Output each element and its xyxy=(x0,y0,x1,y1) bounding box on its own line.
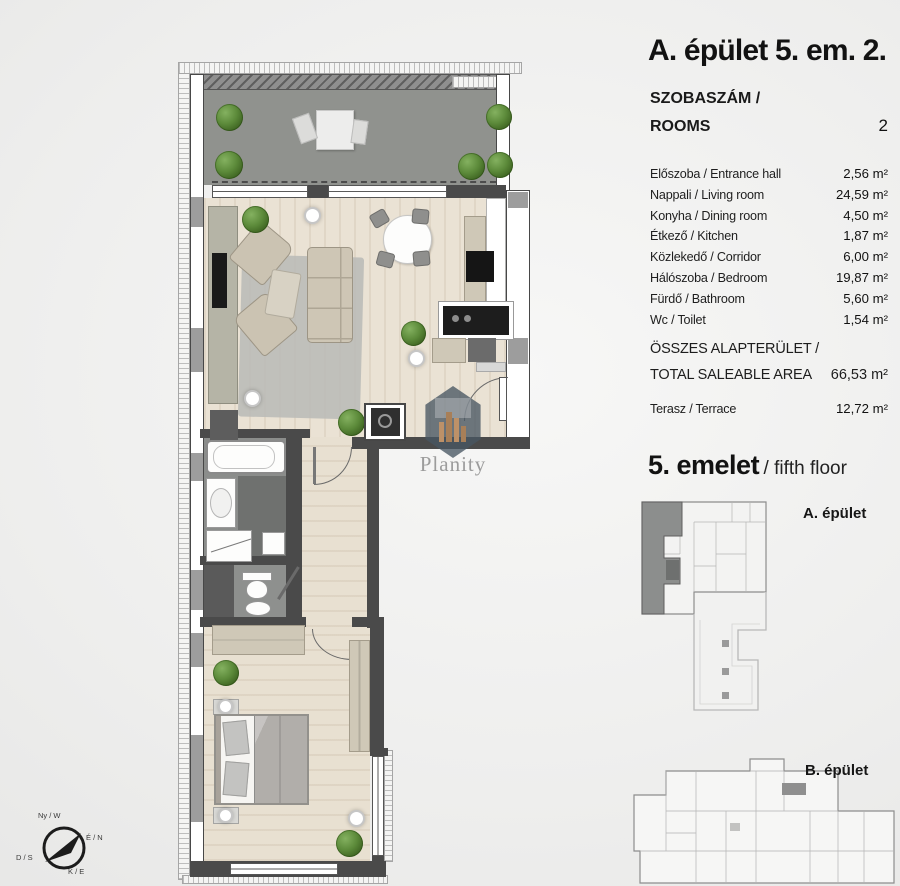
room-area-table: Előszoba / Entrance hall2,56 m² Nappali … xyxy=(650,166,888,332)
living-plant-1 xyxy=(242,206,269,233)
left-wall-segment-2 xyxy=(191,328,203,372)
living-plant-2 xyxy=(401,321,426,346)
table-row: Wc / Toilet1,54 m² xyxy=(650,312,888,333)
washbasin-bowl xyxy=(210,488,232,518)
dining-chair-2 xyxy=(411,208,429,224)
rooms-label-line1: SZOBASZÁM / xyxy=(650,90,760,108)
corridor-door-leaf xyxy=(313,447,316,484)
left-wall-segment-4 xyxy=(191,570,203,610)
living-terrace-window-1 xyxy=(212,185,308,198)
bed-duvet xyxy=(254,716,307,803)
left-wall-segment-5 xyxy=(191,633,203,667)
bedroom-door-opening xyxy=(306,617,352,627)
compass-label-south: D / S xyxy=(16,853,33,862)
sofa xyxy=(307,247,353,343)
table-row: Konyha / Dining room4,50 m² xyxy=(650,208,888,229)
bedroom-plant-2 xyxy=(336,830,363,857)
keyplan-b-label: B. épület xyxy=(805,762,868,779)
wardrobe xyxy=(212,625,305,655)
bedroom-right-wall-step xyxy=(370,748,388,756)
compass-needle xyxy=(45,833,81,862)
floor-heading-suffix: / fifth floor xyxy=(764,458,847,479)
insulation-hatch-top xyxy=(178,62,522,74)
room-label: Hálószoba / Bedroom xyxy=(650,271,767,285)
bedroom-plant-1 xyxy=(213,660,239,686)
living-terrace-pillar xyxy=(308,185,328,198)
table-row: Előszoba / Entrance hall2,56 m² xyxy=(650,166,888,187)
keyplan-a-label: A. épület xyxy=(803,505,866,522)
page-title: A. épület 5. em. 2. xyxy=(648,34,896,68)
sink-knob-2 xyxy=(464,315,471,322)
bath-corridor-column xyxy=(286,438,302,563)
entrance-door-gap xyxy=(508,376,528,420)
entrance-threshold xyxy=(476,362,506,372)
ceiling-light-3 xyxy=(244,390,261,407)
bathtub-inner xyxy=(213,445,275,469)
total-area-block: ÖSSZES ALAPTERÜLET / TOTAL SALEABLE AREA… xyxy=(650,336,888,388)
total-label-line1: ÖSSZES ALAPTERÜLET / xyxy=(650,336,888,362)
room-area: 4,50 m² xyxy=(843,208,888,223)
nightstand-bottom-lamp xyxy=(218,808,233,823)
keyplan-building-a xyxy=(636,496,778,718)
room-label: Nappali / Living room xyxy=(650,188,764,202)
compass-icon xyxy=(38,822,90,874)
planity-wordmark: Planity xyxy=(406,452,500,477)
bed-headboard xyxy=(216,716,221,803)
room-area: 24,59 m² xyxy=(836,187,888,202)
terrace-label: Terasz / Terrace xyxy=(650,402,736,416)
room-area: 5,60 m² xyxy=(843,291,888,306)
corridor-right-wall xyxy=(367,438,379,628)
bedroom-right-window xyxy=(372,756,384,856)
terrace-plant-3 xyxy=(486,104,512,130)
terrace-plant-5 xyxy=(487,152,513,178)
rooms-row: ROOMS 2 xyxy=(650,116,888,136)
terrace-row: Terasz / Terrace 12,72 m² xyxy=(650,401,888,422)
compass: Ny / W É / N D / S K / E xyxy=(10,805,120,883)
bath-appliance xyxy=(262,532,285,555)
room-area: 1,87 m² xyxy=(843,228,888,243)
insulation-hatch-right-bedroom xyxy=(384,750,393,862)
room-label: Konyha / Dining room xyxy=(650,209,767,223)
left-wall-bedroom-window xyxy=(191,735,203,822)
shoe-cabinet xyxy=(432,338,466,363)
left-wall-segment-3 xyxy=(191,453,203,481)
room-area: 2,56 m² xyxy=(843,166,888,181)
ceiling-light-2 xyxy=(408,350,425,367)
planity-buildings-icon xyxy=(439,408,467,442)
insulation-hatch-left xyxy=(178,64,190,880)
room-area: 6,00 m² xyxy=(843,249,888,264)
rooms-value: 2 xyxy=(879,116,888,136)
washing-machine-drum xyxy=(378,414,392,428)
bed-pillow-2 xyxy=(223,761,250,797)
table-row: Fürdő / Bathroom5,60 m² xyxy=(650,291,888,312)
entrance-doormat xyxy=(468,338,496,362)
floor-plan: Planity Ny / W É / N D / S K / E xyxy=(0,0,620,886)
floor-heading-main: 5. emelet xyxy=(648,450,759,480)
bidet xyxy=(245,601,271,616)
room-label: Fürdő / Bathroom xyxy=(650,292,745,306)
compass-label-west: Ny / W xyxy=(38,811,61,820)
table-row: Étkező / Kitchen1,87 m² xyxy=(650,228,888,249)
cooktop xyxy=(466,251,494,282)
entrance-door-leaf xyxy=(499,377,507,421)
terrace-plant-4 xyxy=(458,153,485,180)
table-row: Hálószoba / Bedroom19,87 m² xyxy=(650,270,888,291)
room-label: Közlekedő / Corridor xyxy=(650,250,761,264)
wc-shaft xyxy=(204,565,234,617)
living-terrace-window-2 xyxy=(328,185,447,198)
room-label: Előszoba / Entrance hall xyxy=(650,167,781,181)
nightstand-top-lamp xyxy=(218,699,233,714)
room-area: 1,54 m² xyxy=(843,312,888,327)
terrace-edge-dashed xyxy=(212,181,496,183)
left-wall-segment-1 xyxy=(191,197,203,227)
dining-chair-4 xyxy=(412,250,430,266)
rooms-label-line2: ROOMS xyxy=(650,118,710,136)
terrace-area: 12,72 m² xyxy=(836,401,888,416)
tall-cabinet xyxy=(349,640,370,752)
floor-heading: 5. emelet / fifth floor xyxy=(648,450,847,481)
tv xyxy=(212,253,227,308)
sink-knob-1 xyxy=(452,315,459,322)
ceiling-light-1 xyxy=(304,207,321,224)
room-area: 19,87 m² xyxy=(836,270,888,285)
terrace-plant-2 xyxy=(215,151,243,179)
total-label-line2: TOTAL SALEABLE AREA xyxy=(650,362,812,388)
room-label: Étkező / Kitchen xyxy=(650,229,738,243)
bed xyxy=(214,714,309,805)
living-right-wall-seg-1 xyxy=(508,192,528,208)
room-label: Wc / Toilet xyxy=(650,313,706,327)
living-right-wall-seg-2 xyxy=(508,338,528,364)
terrace-table xyxy=(316,110,354,150)
total-area-value: 66,53 m² xyxy=(831,362,888,388)
info-panel: A. épület 5. em. 2. SZOBASZÁM / ROOMS 2 … xyxy=(648,0,890,886)
living-plant-3 xyxy=(338,409,365,436)
living-terrace-wall xyxy=(447,185,506,198)
table-row: Nappali / Living room24,59 m² xyxy=(650,187,888,208)
corner-cabinet xyxy=(210,410,238,442)
bedroom-ceiling-light xyxy=(348,810,365,827)
bed-pillow-1 xyxy=(222,720,249,756)
bedroom-bottom-window xyxy=(230,863,338,875)
bedroom-right-wall-upper xyxy=(370,617,384,753)
toilet-bowl xyxy=(246,580,268,599)
table-row: Közlekedő / Corridor6,00 m² xyxy=(650,249,888,270)
terrace-plant-1 xyxy=(216,104,243,131)
